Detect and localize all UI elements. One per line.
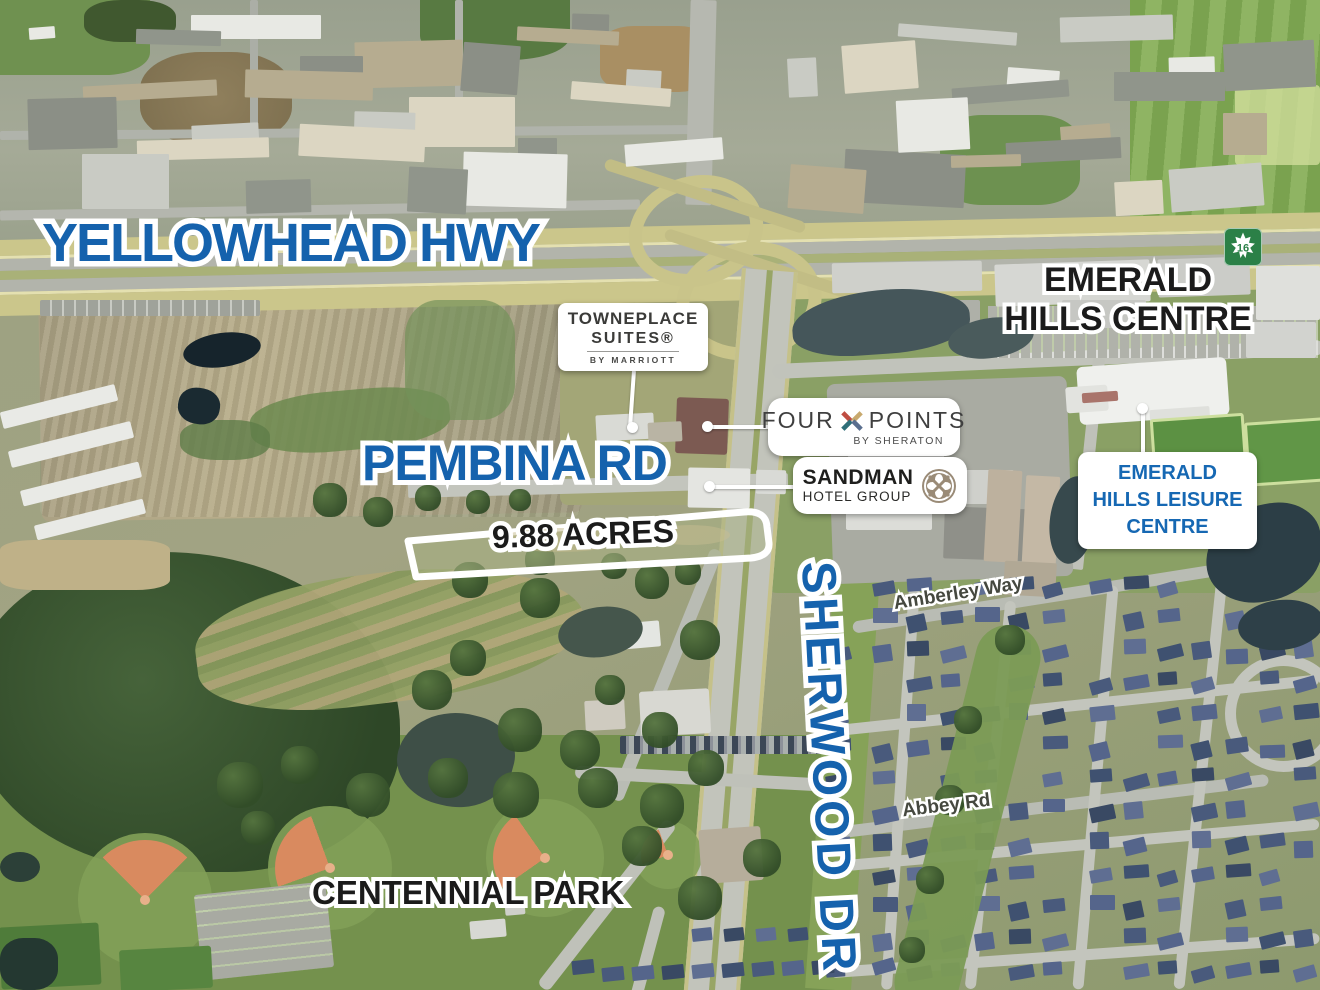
house-roof — [1158, 735, 1183, 749]
house-roof — [872, 644, 893, 663]
warehouse-building — [1060, 15, 1174, 43]
house-roof — [1090, 832, 1110, 850]
tree-cluster — [678, 876, 722, 920]
leisure-leader-line — [1141, 408, 1145, 456]
house-roof — [723, 927, 744, 942]
ball-diamond-home — [663, 850, 673, 860]
leisure-dot — [1137, 403, 1148, 414]
tree-cluster — [412, 670, 452, 710]
house-roof — [1157, 870, 1179, 888]
house-roof — [1157, 608, 1180, 623]
house-roof — [1158, 960, 1178, 974]
house-roof — [631, 965, 654, 981]
tree-cluster — [954, 706, 982, 734]
house-roof — [1226, 927, 1249, 943]
tree-cluster — [560, 730, 600, 770]
house-roof — [1124, 639, 1147, 655]
tree-cluster — [688, 750, 724, 786]
house-roof — [906, 676, 933, 693]
house-roof — [1042, 609, 1065, 624]
acres-text: 9.88 ACRES — [491, 514, 674, 555]
map-label-parcel-acres: 9.88 ACRES — [491, 513, 674, 556]
fourpoints-tagline: BY SHERATON — [853, 435, 944, 447]
mall-building — [1256, 266, 1320, 320]
fourpoints-dot — [702, 421, 713, 432]
warehouse-building — [245, 69, 374, 100]
sandman-logo-icon — [921, 468, 957, 504]
house-roof — [1090, 895, 1115, 910]
house-roof — [1293, 703, 1319, 721]
tree-cluster — [493, 772, 539, 818]
house-roof — [721, 962, 744, 978]
tree-cluster — [509, 489, 531, 511]
house-roof — [1007, 901, 1029, 922]
house-roof — [755, 927, 776, 942]
house-roof — [1008, 964, 1035, 981]
house-roof — [1293, 929, 1314, 948]
callout-four-points: FOUR POINTS BY SHERATON — [768, 398, 960, 456]
tree-cluster — [466, 490, 490, 514]
house-roof — [661, 964, 684, 980]
tree-cluster — [520, 578, 560, 618]
house-roof — [1226, 649, 1249, 665]
house-roof — [1225, 800, 1246, 819]
house-roof — [1088, 741, 1111, 762]
tree-cluster — [578, 768, 618, 808]
tree-cluster — [899, 937, 925, 963]
tree-cluster — [743, 839, 781, 877]
house-roof — [873, 770, 896, 785]
towneplace-dot — [627, 422, 638, 433]
tree-cluster — [916, 866, 944, 894]
towneplace-sub: SUITES® — [591, 330, 675, 348]
house-roof — [1043, 961, 1063, 975]
house-roof — [1042, 644, 1069, 663]
sandman-brand: SANDMAN — [803, 467, 914, 488]
tree-cluster — [217, 762, 263, 808]
tree-cluster — [428, 758, 468, 798]
house-roof — [1259, 869, 1281, 887]
house-roof — [1260, 745, 1285, 759]
sandman-sub: HOTEL GROUP — [803, 490, 912, 504]
warehouse-building — [1168, 162, 1264, 212]
house-roof — [1124, 928, 1147, 944]
map-label-centennial-park: CENTENNIAL PARK — [312, 874, 624, 912]
park-building — [469, 918, 506, 939]
park-pitch — [119, 946, 213, 990]
house-roof — [872, 933, 893, 952]
house-roof — [1123, 801, 1144, 820]
house-roof — [1225, 737, 1249, 755]
warehouse-building — [82, 154, 169, 209]
pond — [0, 938, 58, 990]
warehouse-building — [29, 26, 56, 40]
warehouse-building — [787, 57, 818, 97]
sandman-dot — [704, 481, 715, 492]
tree-cluster — [346, 773, 390, 817]
four-points-x-icon — [841, 410, 863, 432]
house-roof — [1225, 836, 1250, 856]
house-roof — [781, 960, 804, 976]
tree-cluster — [241, 811, 275, 845]
house-roof — [907, 641, 930, 657]
house-roof — [1042, 771, 1063, 787]
tree-cluster — [452, 562, 488, 598]
tree-cluster — [622, 826, 662, 866]
house-roof — [1190, 740, 1213, 761]
house-roof — [873, 897, 898, 912]
house-roof — [871, 743, 894, 764]
warehouse-building — [1114, 180, 1164, 216]
house-roof — [1008, 802, 1029, 821]
centre-line2: HILLS CENTRE — [1004, 301, 1251, 338]
warehouse-building — [460, 42, 521, 95]
map-label-yellowhead-hwy: YELLOWHEAD HWY — [42, 212, 539, 274]
tree-cluster — [642, 712, 678, 748]
house-roof — [1089, 705, 1115, 723]
house-roof — [1259, 832, 1286, 848]
centre-line1: EMERALD — [1044, 262, 1212, 299]
house-roof — [1192, 767, 1215, 782]
house-roof — [1224, 899, 1246, 920]
ball-diamond-home — [140, 895, 150, 905]
tree-cluster — [680, 620, 720, 660]
house-roof — [1191, 704, 1217, 722]
house-roof — [1260, 670, 1280, 684]
house-roof — [940, 610, 963, 625]
house-roof — [974, 932, 995, 951]
park-text: CENTENNIAL PARK — [312, 875, 624, 911]
residential-street — [1072, 585, 1118, 989]
house-roof — [1157, 897, 1180, 912]
house-roof — [906, 740, 930, 758]
house-roof — [1293, 964, 1318, 983]
tree-cluster — [450, 640, 486, 676]
house-roof — [941, 673, 961, 687]
highway-16-shield: 16 — [1224, 228, 1262, 266]
aerial-site-map: YELLOWHEAD HWY EMERALD HILLS CENTRE PEMB… — [0, 0, 1320, 990]
house-roof — [873, 834, 893, 852]
house-roof — [1123, 963, 1150, 980]
leisure-line3: CENTRE — [1126, 514, 1208, 541]
field-green-patch — [405, 300, 515, 420]
tree-cluster — [498, 708, 542, 752]
sandman-leader-line — [710, 485, 795, 489]
house-roof — [1294, 766, 1317, 781]
house-roof — [1122, 900, 1144, 921]
house-roof — [1043, 736, 1068, 750]
fourpoints-word2: POINTS — [869, 407, 967, 434]
house-roof — [1122, 611, 1144, 632]
house-roof — [1089, 677, 1114, 696]
warehouse-building — [136, 29, 221, 46]
callout-towneplace-suites: TOWNEPLACE SUITES® BY MARRIOTT — [558, 303, 708, 371]
house-roof — [1293, 802, 1320, 822]
apartment-building — [984, 469, 1023, 563]
house-roof — [1089, 867, 1113, 884]
tree-cluster — [313, 483, 347, 517]
house-roof — [905, 613, 927, 634]
house-roof — [1259, 896, 1282, 911]
house-roof — [1090, 768, 1113, 783]
house-roof — [1191, 965, 1216, 984]
warehouse-building — [462, 152, 567, 209]
tree-cluster — [281, 746, 319, 784]
house-roof — [1043, 672, 1063, 686]
house-roof — [1259, 931, 1286, 950]
tree-cluster — [363, 497, 393, 527]
house-roof — [571, 959, 594, 975]
house-roof — [1123, 674, 1150, 691]
house-roof — [1157, 707, 1181, 724]
house-roof — [1191, 866, 1215, 883]
house-roof — [1042, 933, 1069, 952]
yellowhead-text: YELLOWHEAD HWY — [42, 214, 539, 272]
warehouse-building — [246, 179, 312, 214]
warehouse-building — [27, 97, 117, 150]
callout-emerald-hills-leisure-centre: EMERALD HILLS LEISURE CENTRE — [1078, 452, 1257, 549]
map-label-emerald-hills-centre: EMERALD HILLS CENTRE — [1008, 262, 1248, 337]
warehouse-building — [841, 40, 919, 94]
ball-diamond-home — [325, 863, 335, 873]
ball-diamond-home — [540, 853, 550, 863]
house-roof — [907, 704, 926, 721]
house-roof — [751, 961, 774, 977]
house-roof — [787, 927, 808, 942]
warehouse-building — [787, 164, 866, 214]
house-roof — [1124, 864, 1150, 879]
warehouse-building — [298, 124, 426, 163]
house-roof — [1157, 643, 1184, 662]
pembina-text: PEMBINA RD — [362, 436, 667, 490]
house-roof — [1260, 959, 1280, 973]
house-roof — [940, 645, 967, 664]
shield-number: 16 — [1237, 242, 1249, 254]
towneplace-brand: TOWNEPLACE — [568, 309, 699, 329]
house-roof — [601, 966, 624, 982]
house-roof — [1124, 575, 1150, 590]
leisure-line1: EMERALD — [1118, 460, 1217, 487]
field-green-patch — [180, 420, 270, 460]
house-roof — [1226, 863, 1252, 878]
tree-cluster — [640, 784, 684, 828]
warehouse-building — [951, 154, 1021, 168]
fourpoints-word1: FOUR — [762, 407, 835, 434]
tree-cluster — [675, 559, 701, 585]
house-roof — [975, 607, 1000, 622]
maple-leaf-icon: 16 — [1226, 230, 1260, 264]
commercial-building — [756, 470, 786, 495]
house-roof — [1158, 671, 1178, 685]
warehouse-building — [1223, 113, 1267, 155]
tan-field-strip — [0, 540, 170, 590]
map-label-pembina-rd: PEMBINA RD — [362, 434, 667, 492]
house-roof — [1191, 641, 1212, 660]
house-roof — [1192, 831, 1212, 849]
house-roof — [1294, 841, 1314, 859]
house-roof — [1009, 865, 1035, 880]
house-roof — [1009, 929, 1032, 945]
tree-cluster — [995, 625, 1025, 655]
mall-building — [1246, 322, 1316, 358]
house-roof — [691, 963, 714, 979]
parking-row — [40, 300, 260, 316]
pond — [0, 852, 40, 882]
house-roof — [1043, 799, 1065, 812]
callout-sandman: SANDMAN HOTEL GROUP — [793, 457, 967, 514]
warehouse-building — [896, 97, 971, 153]
towneplace-divider — [587, 351, 679, 352]
warehouse-building — [1114, 72, 1225, 101]
tree-cluster — [595, 675, 625, 705]
tree-cluster — [635, 565, 669, 599]
warehouse-building — [407, 166, 468, 214]
leisure-line2: HILLS LEISURE — [1092, 487, 1242, 514]
house-roof — [1225, 962, 1252, 979]
house-roof — [691, 927, 712, 942]
house-roof — [1042, 898, 1065, 913]
towneplace-tagline: BY MARRIOTT — [590, 355, 676, 365]
warehouse-building — [1223, 40, 1316, 92]
tree-cluster — [601, 553, 627, 579]
